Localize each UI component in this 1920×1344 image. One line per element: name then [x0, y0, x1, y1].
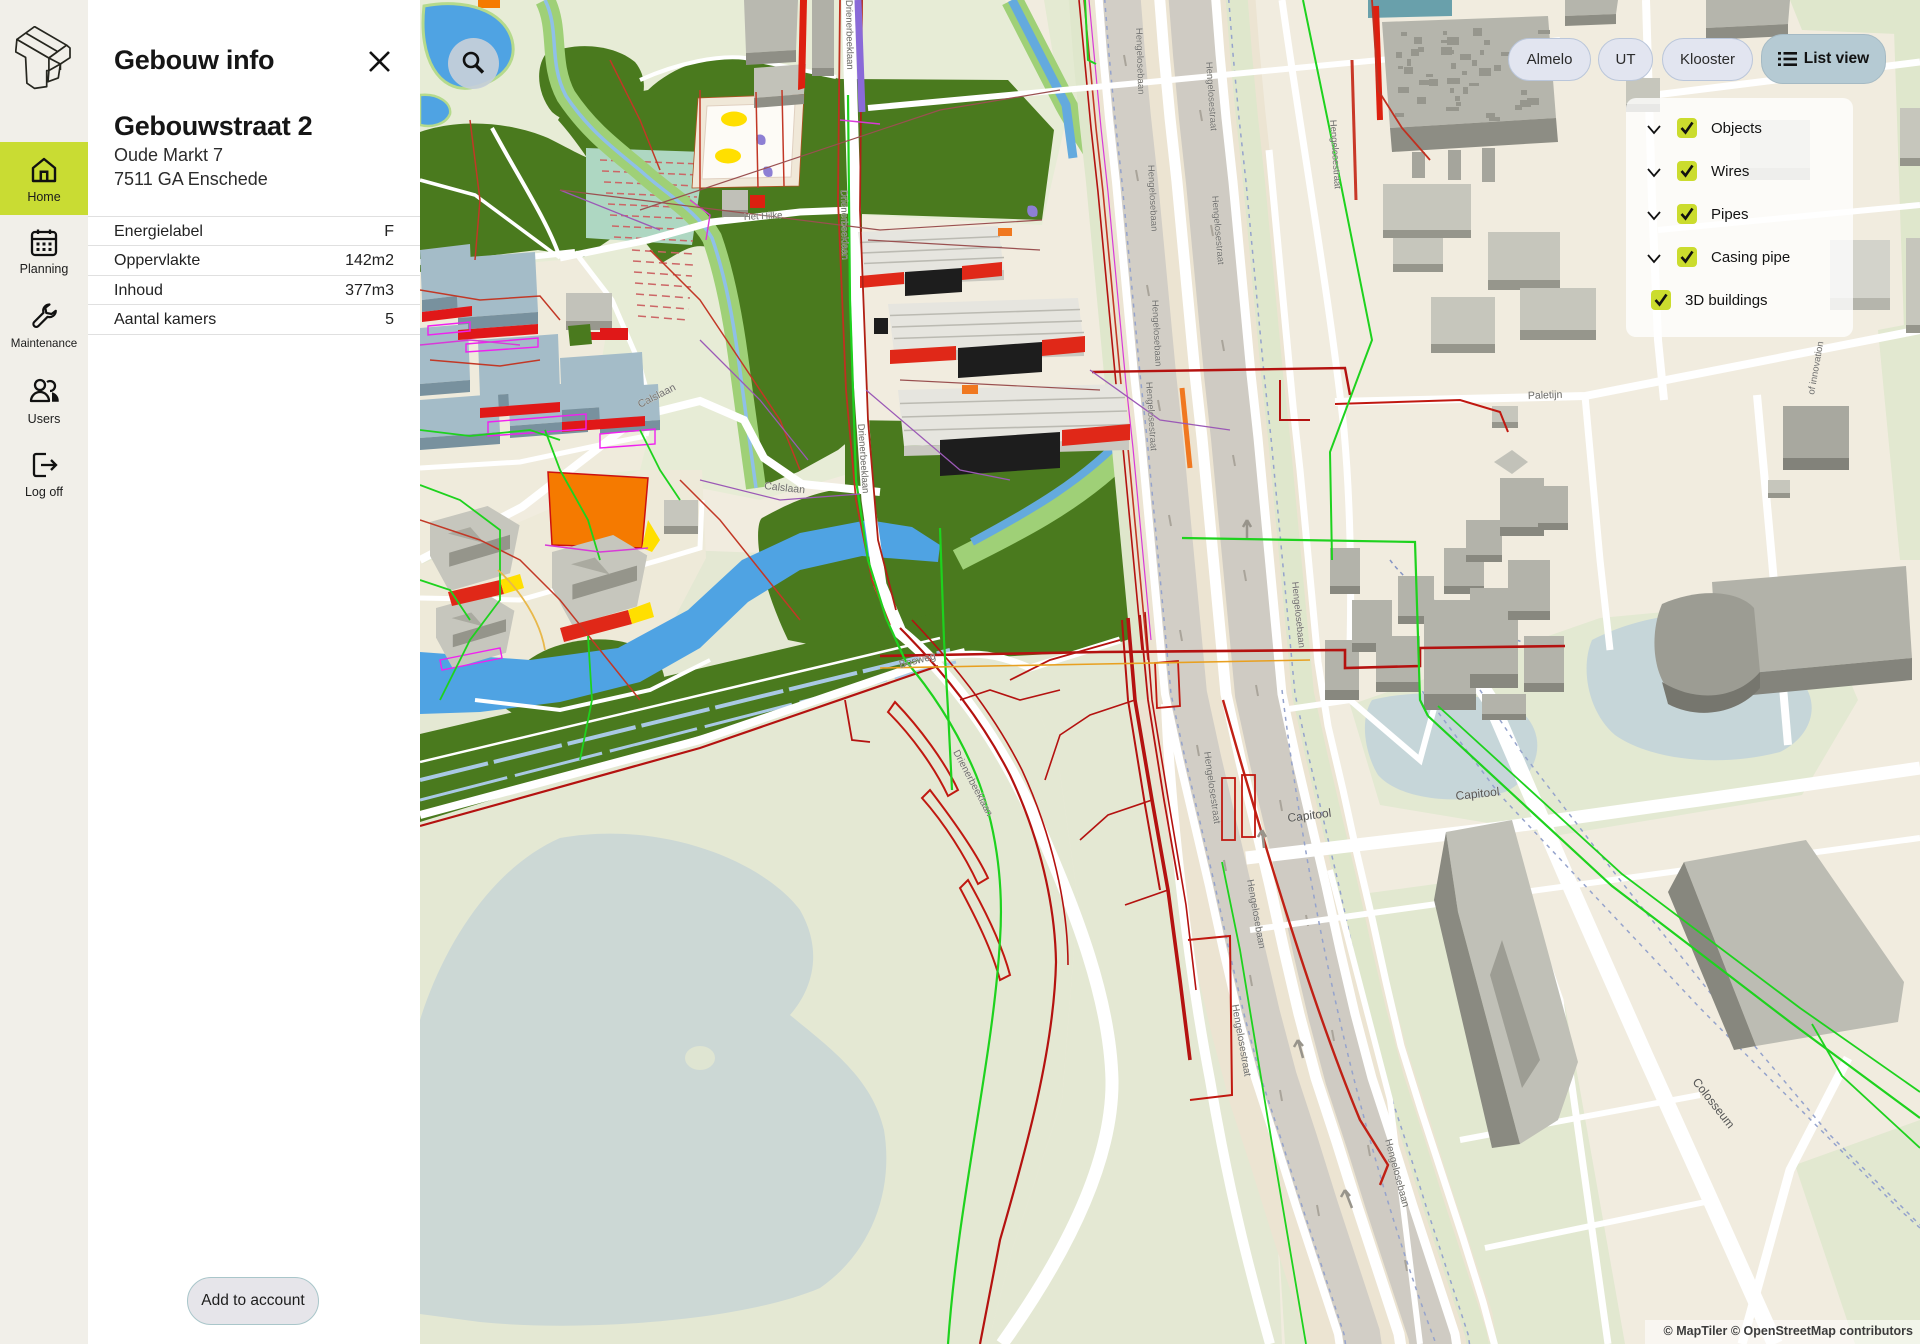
- svg-text:Hengelosebaan: Hengelosebaan: [1133, 28, 1146, 95]
- svg-text:Drienerbeeklaan: Drienerbeeklaan: [843, 0, 855, 70]
- svg-text:Het Hilke: Het Hilke: [744, 210, 783, 223]
- svg-text:Drienerbeeklaan: Drienerbeeklaan: [838, 190, 850, 260]
- svg-text:Paletijn: Paletijn: [1528, 389, 1563, 402]
